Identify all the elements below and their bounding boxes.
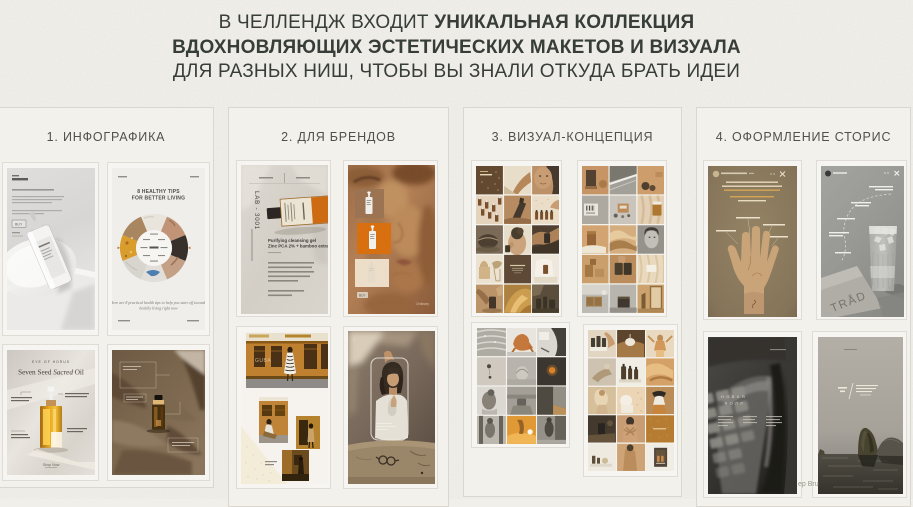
svg-text:Here are 8 practical health ti: Here are 8 practical health tips to help… <box>112 300 205 305</box>
svg-text:healthy living right now: healthy living right now <box>139 306 178 311</box>
svg-text:C: C <box>353 337 356 342</box>
svg-text:EYE ∅F HORUS: EYE ∅F HORUS <box>32 360 70 364</box>
svg-text:КОЛЛ: КОЛЛ <box>725 401 745 406</box>
svg-text:Zinc PCA 2% + bamboo extract: Zinc PCA 2% + bamboo extract <box>268 244 328 249</box>
svg-text:FOR BETTER LIVING: FOR BETTER LIVING <box>132 196 185 202</box>
svg-text:GUBA: GUBA <box>255 358 271 364</box>
svg-text:НОВАЯ: НОВАЯ <box>721 394 747 399</box>
svg-text:8 HEALTHY TIPS: 8 HEALTHY TIPS <box>137 189 180 195</box>
svg-text:Seven Seed Sacred Oil: Seven Seed Sacred Oil <box>18 369 84 377</box>
svg-text:BUY: BUY <box>15 223 23 227</box>
svg-text:LAB - 3001: LAB - 3001 <box>253 191 260 230</box>
svg-text:Purifying cleansing gel: Purifying cleansing gel <box>268 238 316 243</box>
svg-text:Shop Now: Shop Now <box>43 463 60 467</box>
